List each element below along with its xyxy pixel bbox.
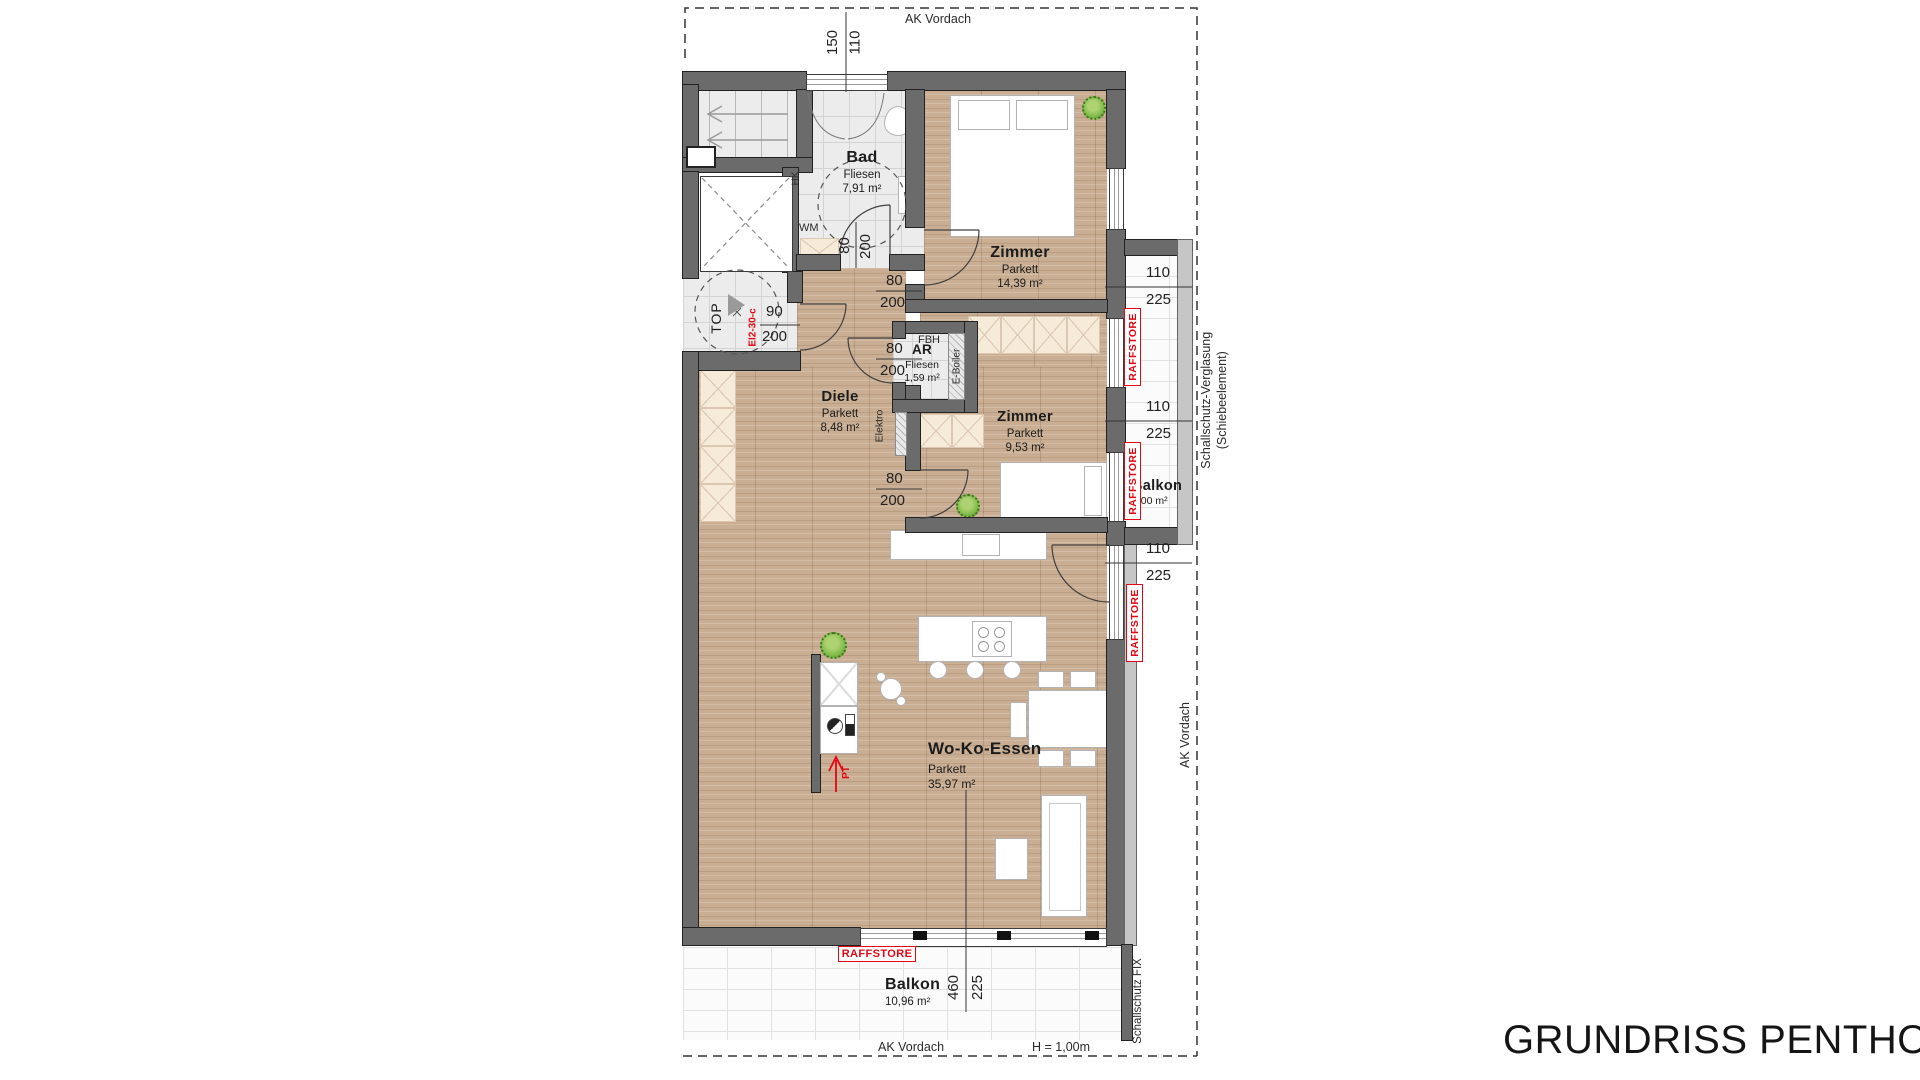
wall-east-2 — [1107, 230, 1125, 318]
wardrobe — [700, 484, 736, 522]
office-chair-wheel — [876, 672, 886, 682]
dim-entry-200: 200 — [762, 328, 787, 345]
burner-icon — [978, 641, 989, 652]
ak-vordach-top-label: AK Vordach — [905, 12, 971, 26]
hk-label: HK — [789, 164, 803, 192]
dim-win3-225: 225 — [1146, 567, 1171, 584]
raffstore-badge: RAFFSTORE — [1124, 308, 1141, 386]
pillow — [1084, 466, 1102, 516]
e-boiler-label: E-Boiler — [948, 333, 965, 400]
wardrobe — [700, 370, 736, 408]
wall-bad-south-right — [890, 255, 924, 270]
window-zimmer2 — [1109, 318, 1124, 388]
bar-stool — [929, 661, 947, 679]
dim-z1-door-200: 200 — [880, 294, 905, 311]
window-mullion — [913, 931, 927, 940]
wall-north-left — [683, 72, 806, 90]
entry-direction-icon — [728, 294, 745, 316]
room-label-wohnen: Wo-Ko-Essen Parkett 35,97 m² — [928, 738, 1048, 792]
wall-east-5 — [1107, 640, 1125, 945]
kitchen-tall-unit — [820, 662, 858, 706]
pt-label: PT — [834, 758, 858, 786]
raffstore-badge: RAFFSTORE — [1126, 584, 1143, 662]
oven-icon — [827, 718, 843, 734]
dim-top-150: 150 — [824, 16, 842, 68]
dim-entry-90: 90 — [766, 303, 783, 320]
dim-bad-door-80: 80 — [836, 228, 852, 262]
burner-icon — [978, 627, 989, 638]
pillow — [1016, 100, 1068, 130]
chair — [1070, 671, 1096, 688]
wardrobe — [1034, 316, 1067, 354]
dim-balkon-225: 225 — [968, 960, 988, 1014]
window-bad — [806, 74, 888, 91]
wall-elevator-west — [683, 172, 698, 278]
chair — [1038, 671, 1064, 688]
wall-ar-west-top — [893, 322, 905, 338]
chair — [1070, 750, 1096, 767]
raffstore-badge: RAFFSTORE — [1124, 442, 1141, 520]
wardrobe — [1001, 316, 1034, 354]
wall-south-left — [683, 928, 860, 945]
pillow — [958, 100, 1010, 130]
dim-z1-door-80: 80 — [886, 272, 903, 289]
plant-icon — [820, 632, 847, 659]
wall-west-main — [683, 352, 698, 945]
raffstore-badge: RAFFSTORE — [838, 946, 916, 962]
schallschutz-verglasung-label: Schallschutz-Verglasung (Schiebeelement) — [1196, 300, 1232, 500]
elektro-panel — [895, 412, 907, 456]
room-label-zimmer2: Zimmer Parkett 9,53 m² — [975, 408, 1075, 456]
wall-zimmer1-south — [906, 300, 1107, 312]
dim-win1-225: 225 — [1146, 291, 1171, 308]
appliance-icon — [845, 714, 855, 736]
fbh-label: FBH — [918, 334, 940, 346]
wall-north-right — [888, 72, 1125, 90]
balkon-height-label: H = 1,00m — [1032, 1040, 1090, 1054]
wall-bad-south-left — [797, 255, 840, 270]
window-mullion — [997, 931, 1011, 940]
dim-win1-110: 110 — [1146, 264, 1170, 281]
wall-entry-jamb — [788, 272, 802, 302]
dim-win3-110: 110 — [1146, 540, 1170, 557]
office-chair-wheel — [896, 696, 906, 706]
dim-z2-door-200: 200 — [880, 492, 905, 509]
balcony-door-east — [1109, 545, 1124, 640]
page-title: GRUNDRISS PENTHOUSE — [1503, 1018, 1920, 1063]
wall-east-3 — [1107, 388, 1125, 452]
cooktop-icon — [972, 621, 1012, 657]
ak-vordach-right-label: AK Vordach — [1176, 695, 1194, 775]
room-label-bad: Bad Fliesen 7,91 m² — [812, 148, 912, 197]
bar-stool — [1003, 661, 1021, 679]
wall-vestibule-south — [683, 352, 800, 370]
dim-ar-door-80: 80 — [886, 340, 903, 357]
burner-icon — [994, 627, 1005, 638]
wardrobe — [1067, 316, 1100, 354]
wall-zimmer2-west — [906, 386, 920, 470]
wall-east-4 — [1107, 522, 1125, 545]
wall-east-1 — [1107, 90, 1125, 168]
window-mullion — [1085, 931, 1099, 940]
wardrobe — [700, 446, 736, 484]
wardrobe — [920, 414, 952, 448]
top-unit-label: TOP — [706, 292, 726, 344]
dim-win2-110: 110 — [1146, 398, 1170, 415]
dim-z2-door-80: 80 — [886, 470, 903, 487]
elektro-label: Elektro — [872, 402, 887, 450]
wall-zimmer2-south — [906, 518, 1107, 532]
dim-win2-225: 225 — [1146, 425, 1171, 442]
plant-icon — [956, 494, 980, 518]
elevator-cabin — [700, 176, 793, 272]
ak-vordach-bottom-label: AK Vordach — [878, 1040, 944, 1054]
floorplan-sheet: AK Vordach 150 110 Bad Fliesen 7,91 m² Z… — [0, 0, 1920, 1080]
wall-kitchen-west — [812, 655, 820, 792]
dim-ar-door-200: 200 — [880, 362, 905, 379]
sofa-cushion — [1049, 803, 1081, 911]
kitchen-sink — [962, 534, 1000, 556]
window-wohnen — [1109, 452, 1124, 522]
chair — [1010, 702, 1027, 738]
window-zimmer1 — [1109, 168, 1124, 230]
wall-niche — [686, 146, 716, 168]
sideboard — [995, 838, 1028, 880]
dim-top-110: 110 — [846, 16, 864, 68]
fire-rating-label: EI2-30-c — [746, 298, 760, 356]
room-label-zimmer1: Zimmer Parkett 14,39 m² — [965, 243, 1075, 292]
dim-bad-door-200: 200 — [858, 226, 874, 266]
burner-icon — [994, 641, 1005, 652]
wm-label: WM — [799, 222, 819, 234]
schallschutz-fix-label: Schallschutz FIX — [1128, 948, 1148, 1053]
wall-ar-east — [965, 322, 977, 412]
plant-icon — [1082, 96, 1106, 120]
window-band-south — [860, 928, 1107, 947]
wardrobe — [700, 408, 736, 446]
dim-balkon-460: 460 — [944, 960, 964, 1014]
bar-stool — [966, 661, 984, 679]
